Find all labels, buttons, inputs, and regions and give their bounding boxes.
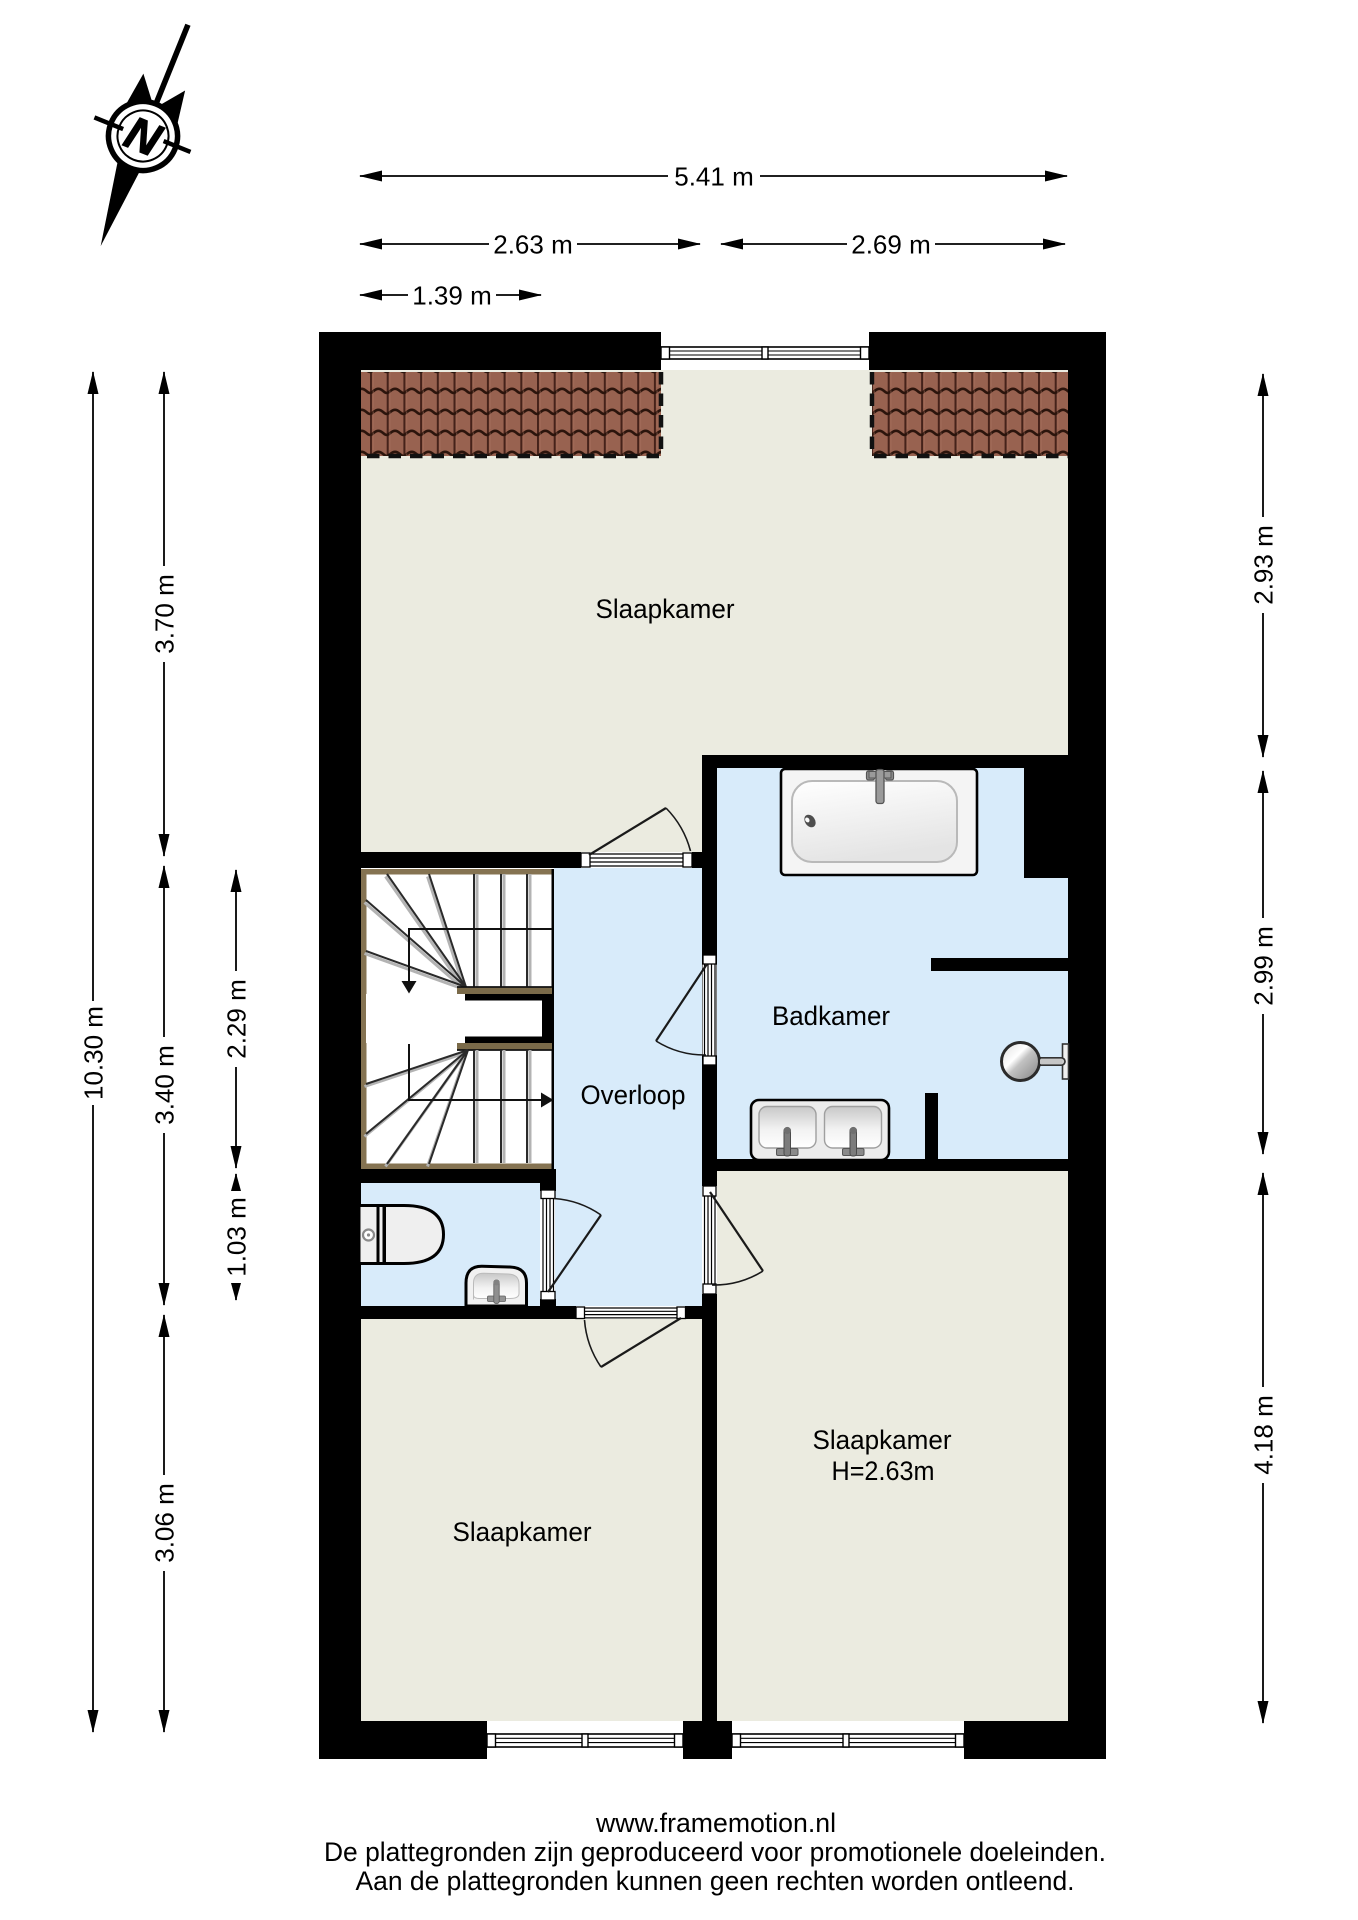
svg-text:4.18 m: 4.18 m [1249,1395,1279,1475]
svg-text:2.63 m: 2.63 m [493,230,573,260]
svg-text:5.41 m: 5.41 m [674,162,754,192]
svg-text:Slaapkamer: Slaapkamer [813,1425,952,1455]
svg-text:2.99 m: 2.99 m [1249,926,1279,1006]
svg-text:1.39 m: 1.39 m [412,281,492,311]
svg-text:2.69 m: 2.69 m [851,230,931,260]
svg-text:3.70 m: 3.70 m [150,574,180,654]
svg-text:10.30 m: 10.30 m [79,1006,109,1100]
svg-text:3.40 m: 3.40 m [150,1045,180,1125]
svg-text:Aan de plattegronden kunnen ge: Aan de plattegronden kunnen geen rechten… [356,1866,1075,1896]
svg-text:2.29 m: 2.29 m [222,979,252,1059]
svg-text:www.framemotion.nl: www.framemotion.nl [595,1808,836,1838]
svg-text:De plattegronden zijn geproduc: De plattegronden zijn geproduceerd voor … [324,1837,1106,1867]
svg-text:2.93 m: 2.93 m [1249,525,1279,605]
svg-text:Badkamer: Badkamer [772,1001,890,1031]
svg-text:H=2.63m: H=2.63m [832,1456,935,1486]
svg-text:3.06 m: 3.06 m [150,1483,180,1563]
svg-text:1.03 m: 1.03 m [222,1197,252,1277]
svg-text:Slaapkamer: Slaapkamer [596,594,735,624]
svg-text:Slaapkamer: Slaapkamer [453,1517,592,1547]
svg-text:Overloop: Overloop [581,1080,686,1110]
